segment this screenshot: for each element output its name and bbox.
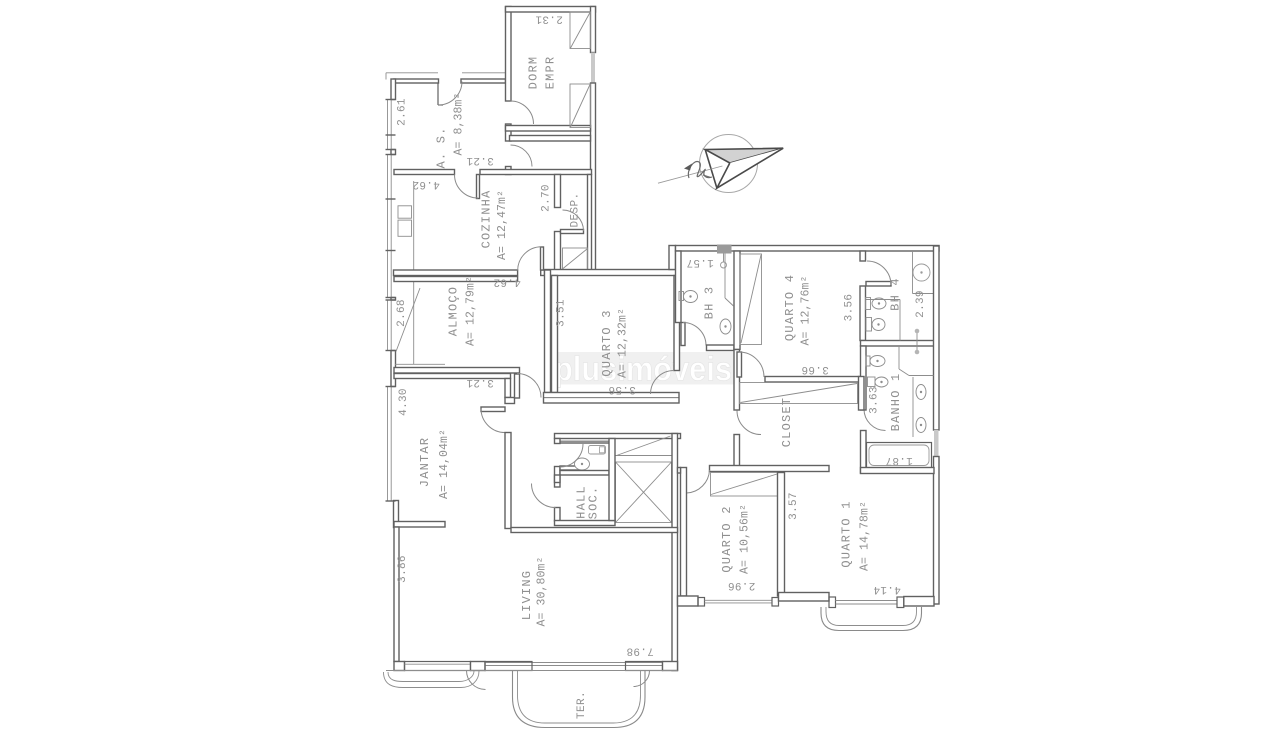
svg-text:1.87: 1.87 xyxy=(885,454,913,466)
svg-text:QUARTO 3: QUARTO 3 xyxy=(600,309,614,376)
svg-text:JANTAR: JANTAR xyxy=(418,437,432,487)
svg-text:4.62: 4.62 xyxy=(493,276,521,288)
svg-text:SOC.: SOC. xyxy=(587,486,601,520)
svg-text:A= 14,04m²: A= 14,04m² xyxy=(438,429,451,499)
svg-text:2.68: 2.68 xyxy=(396,299,408,327)
svg-text:3.51: 3.51 xyxy=(556,299,568,327)
svg-text:3.57: 3.57 xyxy=(788,492,800,520)
svg-text:2.70: 2.70 xyxy=(541,184,553,212)
svg-text:EMPR: EMPR xyxy=(544,56,558,90)
svg-text:A= 12,32m²: A= 12,32m² xyxy=(617,308,630,378)
svg-text:QUARTO 4: QUARTO 4 xyxy=(783,274,797,341)
svg-text:A= 12,47m²: A= 12,47m² xyxy=(496,190,509,260)
svg-text:BANHO 1: BANHO 1 xyxy=(889,373,903,432)
svg-text:7.98: 7.98 xyxy=(626,645,654,657)
svg-text:DESP.: DESP. xyxy=(570,192,582,227)
svg-text:3.56: 3.56 xyxy=(844,294,856,322)
svg-text:3.66: 3.66 xyxy=(801,363,829,375)
svg-text:4.30: 4.30 xyxy=(398,388,410,416)
svg-text:DORM: DORM xyxy=(527,56,541,90)
svg-text:A= 12,76m²: A= 12,76m² xyxy=(800,275,813,345)
svg-text:LIVING: LIVING xyxy=(520,570,534,620)
svg-text:3.86: 3.86 xyxy=(397,555,409,583)
svg-text:QUARTO 1: QUARTO 1 xyxy=(840,500,854,567)
svg-text:2.96: 2.96 xyxy=(728,579,756,591)
svg-text:3.21: 3.21 xyxy=(466,376,494,388)
svg-text:4.62: 4.62 xyxy=(412,178,440,190)
svg-text:3.21: 3.21 xyxy=(466,154,494,166)
svg-text:QUARTO 2: QUARTO 2 xyxy=(720,505,734,572)
svg-text:A= 30,80m²: A= 30,80m² xyxy=(536,556,549,626)
svg-text:3.63: 3.63 xyxy=(869,386,881,414)
svg-text:BH 3: BH 3 xyxy=(703,286,717,320)
svg-text:A= 12,79m²: A= 12,79m² xyxy=(465,276,478,346)
svg-text:plusimóveis: plusimóveis xyxy=(554,351,732,389)
svg-text:A= 10,56m²: A= 10,56m² xyxy=(739,504,752,574)
svg-text:3.56: 3.56 xyxy=(608,383,636,395)
svg-text:CLOSET: CLOSET xyxy=(780,397,794,447)
svg-text:A. S.: A. S. xyxy=(435,126,449,168)
svg-text:2.31: 2.31 xyxy=(535,13,563,25)
svg-text:1.57: 1.57 xyxy=(686,256,714,268)
svg-text:2.61: 2.61 xyxy=(397,98,409,126)
svg-text:ALMOÇO: ALMOÇO xyxy=(447,286,461,336)
svg-text:TER.: TER. xyxy=(576,691,588,719)
svg-text:4.14: 4.14 xyxy=(873,583,901,595)
svg-text:A= 14,78m²: A= 14,78m² xyxy=(859,501,872,571)
svg-text:COZINHA: COZINHA xyxy=(480,190,494,249)
svg-text:BH 4: BH 4 xyxy=(889,277,903,311)
svg-text:A= 8,38m²: A= 8,38m² xyxy=(453,92,466,155)
svg-text:2.39: 2.39 xyxy=(915,290,927,318)
